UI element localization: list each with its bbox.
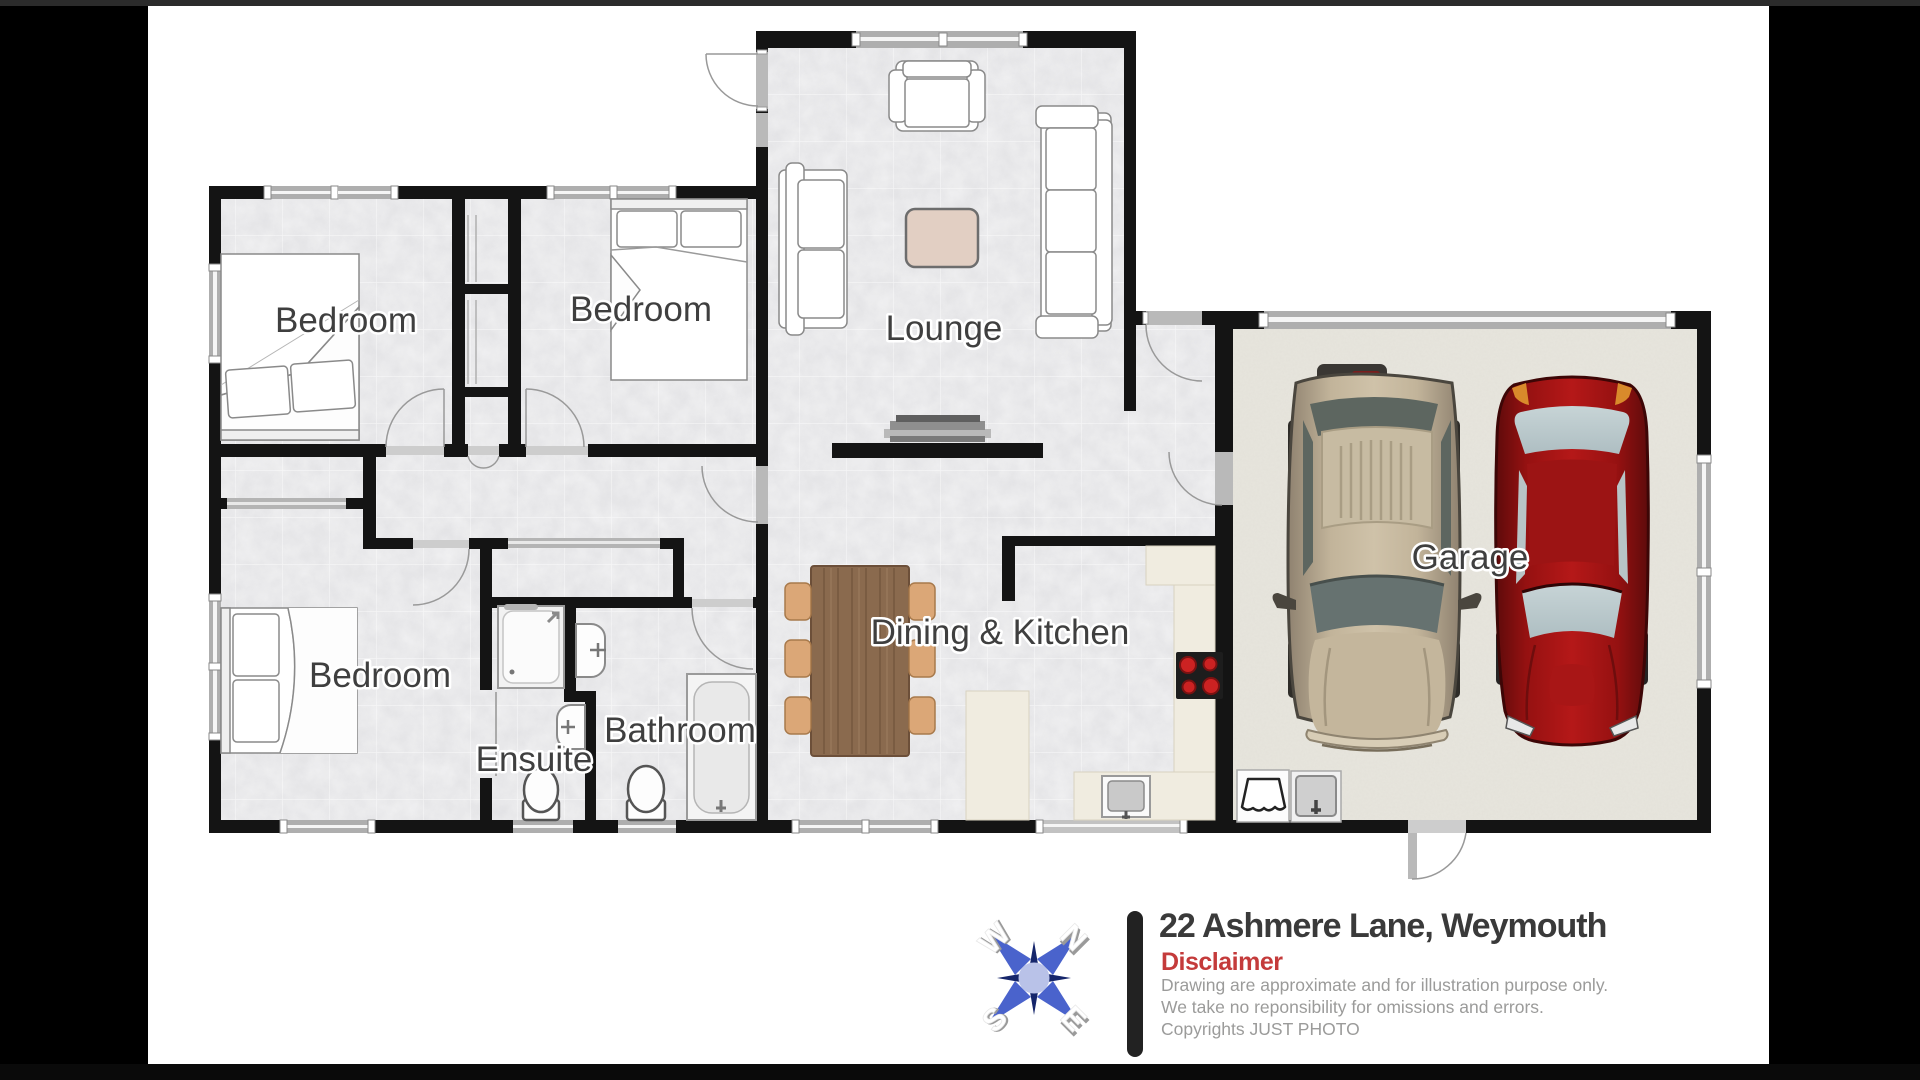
svg-text:Garage: Garage bbox=[1412, 538, 1529, 577]
svg-text:Drawing are approximate and f: Drawing are approximate and for illustra… bbox=[1161, 975, 1608, 995]
svg-text:Bedroom: Bedroom bbox=[309, 656, 451, 695]
svg-text:Lounge: Lounge bbox=[886, 309, 1003, 348]
svg-text:22 Ashmere Lane, Weymouth: 22 Ashmere Lane, Weymouth bbox=[1159, 907, 1606, 945]
svg-text:Dining & Kitchen: Dining & Kitchen bbox=[871, 613, 1130, 652]
svg-text:We take no reponsibility for o: We take no reponsibility for omissions a… bbox=[1161, 997, 1544, 1017]
svg-text:Disclaimer: Disclaimer bbox=[1161, 948, 1283, 976]
svg-text:Ensuite: Ensuite bbox=[476, 740, 593, 779]
svg-text:Bedroom: Bedroom bbox=[275, 301, 417, 340]
svg-text:Bathroom: Bathroom bbox=[604, 711, 756, 750]
svg-text:Copyrights JUST PHOTO: Copyrights JUST PHOTO bbox=[1161, 1019, 1360, 1039]
svg-text:Bedroom: Bedroom bbox=[570, 290, 712, 329]
